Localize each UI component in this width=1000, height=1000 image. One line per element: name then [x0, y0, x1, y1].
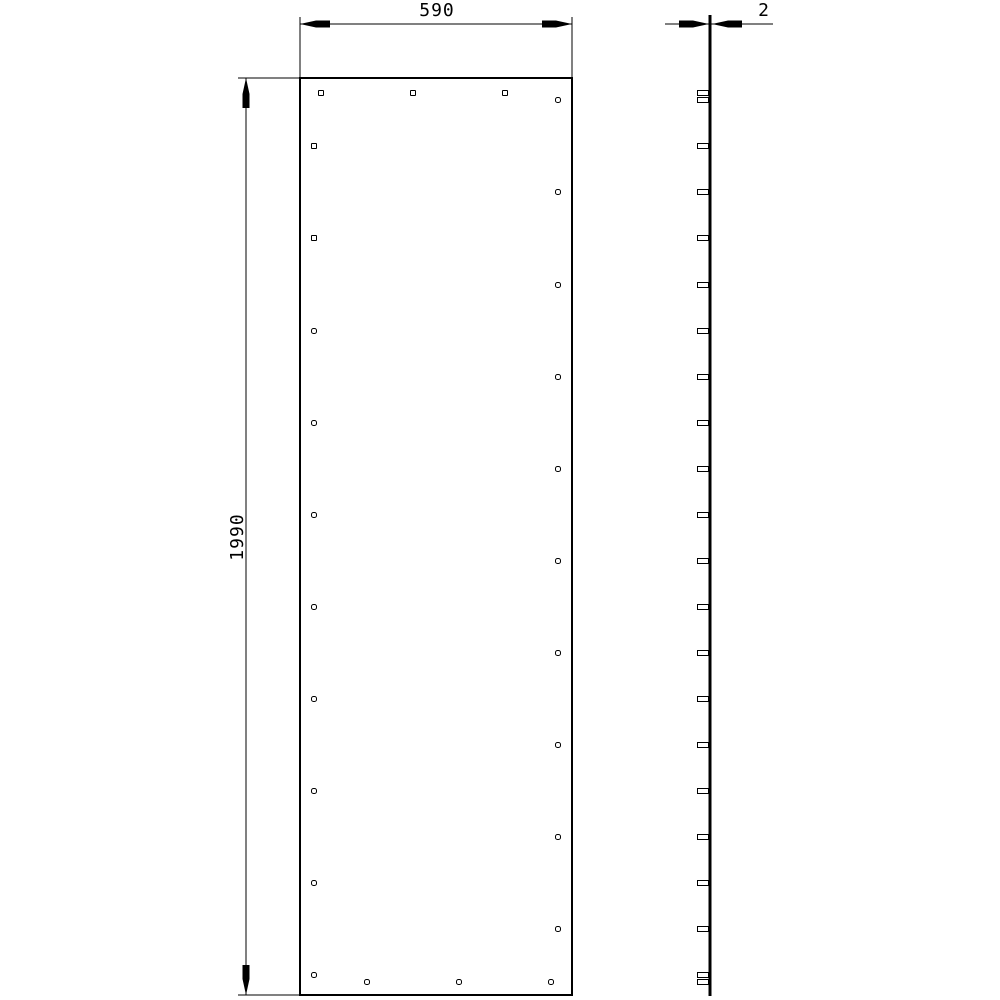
mounting-hole	[312, 881, 317, 886]
dimension-width-label: 590	[419, 0, 455, 21]
mounting-hole	[457, 980, 462, 985]
technical-drawing: 590 1990 2	[0, 0, 1000, 1000]
mounting-hole	[556, 651, 561, 656]
hole-slot	[698, 980, 709, 985]
mounting-hole	[312, 236, 317, 241]
arrowhead-width	[300, 21, 330, 28]
mounting-hole	[556, 467, 561, 472]
hole-slot	[698, 881, 709, 886]
mounting-hole	[312, 697, 317, 702]
mounting-hole	[312, 605, 317, 610]
mounting-hole	[556, 283, 561, 288]
mounting-hole	[503, 91, 508, 96]
arrowhead-height	[243, 78, 250, 108]
drawing-geometry	[238, 15, 773, 996]
mounting-hole	[549, 980, 554, 985]
mounting-hole	[556, 927, 561, 932]
hole-slot	[698, 467, 709, 472]
mounting-hole	[556, 835, 561, 840]
mounting-hole	[556, 743, 561, 748]
hole-slot	[698, 98, 709, 103]
mounting-hole	[312, 789, 317, 794]
hole-slot	[698, 789, 709, 794]
mounting-hole	[556, 375, 561, 380]
hole-slot	[698, 927, 709, 932]
hole-slot	[698, 283, 709, 288]
hole-slot	[698, 973, 709, 978]
hole-slot	[698, 743, 709, 748]
hole-slot	[698, 697, 709, 702]
hole-slot	[698, 144, 709, 149]
arrowhead-thickness	[679, 21, 709, 28]
mounting-hole	[312, 144, 317, 149]
drawing-canvas: 590 1990 2	[0, 0, 1000, 1000]
mounting-hole	[411, 91, 416, 96]
mounting-hole	[365, 980, 370, 985]
mounting-hole	[556, 559, 561, 564]
hole-slot	[698, 835, 709, 840]
mounting-hole	[556, 98, 561, 103]
hole-slot	[698, 375, 709, 380]
arrowhead-width	[542, 21, 572, 28]
dimension-thickness-label: 2	[758, 0, 770, 21]
mounting-hole	[319, 91, 324, 96]
hole-slot	[698, 329, 709, 334]
hole-slot	[698, 651, 709, 656]
mounting-hole	[312, 329, 317, 334]
hole-slot	[698, 559, 709, 564]
hole-slot	[698, 190, 709, 195]
hole-slot	[698, 91, 709, 96]
mounting-hole	[556, 190, 561, 195]
hole-slot	[698, 513, 709, 518]
arrowhead-height	[243, 965, 250, 995]
hole-slot	[698, 421, 709, 426]
arrowhead-thickness	[712, 21, 742, 28]
hole-slot	[698, 236, 709, 241]
mounting-hole	[312, 973, 317, 978]
mounting-hole	[312, 421, 317, 426]
dimension-height-label: 1990	[227, 513, 248, 560]
hole-slot	[698, 605, 709, 610]
mounting-hole	[312, 513, 317, 518]
panel-outline	[300, 78, 572, 995]
